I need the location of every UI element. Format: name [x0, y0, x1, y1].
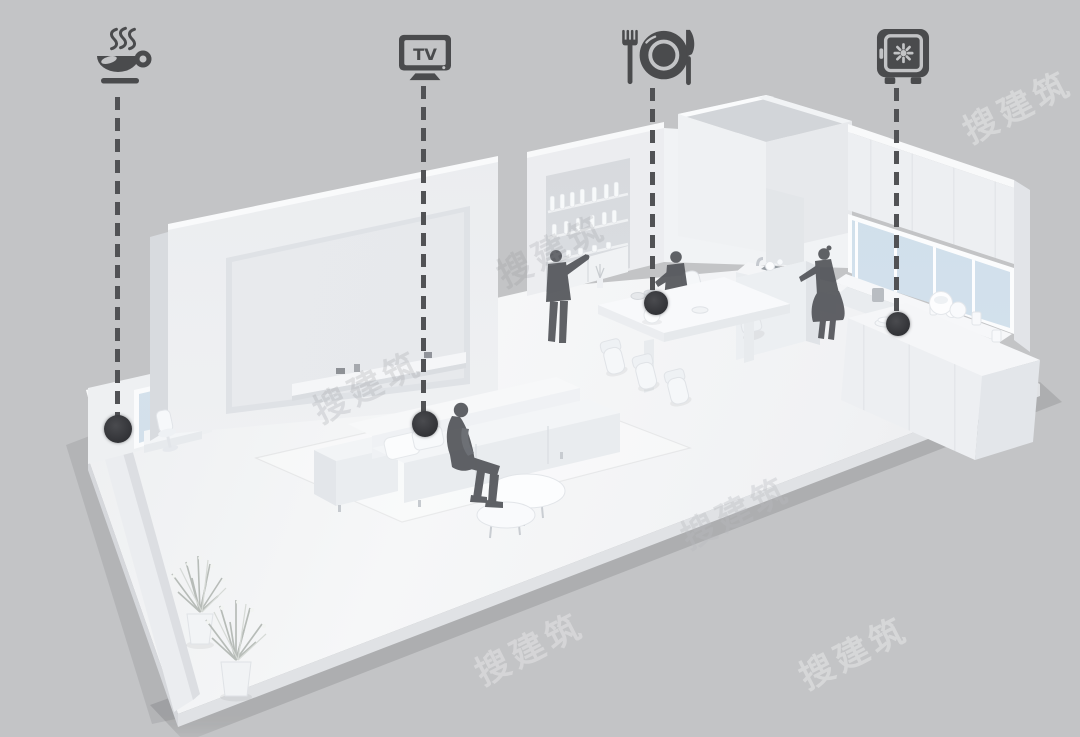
canister [972, 312, 981, 325]
bowl [631, 293, 645, 300]
person-silhouette-wine-shelf [546, 250, 589, 343]
person-shin [473, 470, 485, 499]
safe-foot [885, 77, 896, 84]
plant-leaves [172, 556, 222, 612]
coffee-table-small [477, 502, 535, 538]
dining-table-items [631, 290, 708, 325]
safe-marker-dot [886, 312, 910, 336]
coffee-cup-icon [94, 26, 154, 90]
plate [640, 31, 688, 79]
mixing-bowl [950, 302, 966, 318]
tv-label: TV [413, 45, 437, 64]
person-head [550, 250, 562, 262]
tv-stand [410, 73, 441, 80]
plant-pot [221, 662, 251, 696]
dining-chair [662, 368, 692, 409]
vase [597, 278, 603, 288]
plant-pot [187, 614, 213, 644]
cup [766, 262, 775, 271]
tv-indicator [442, 66, 445, 69]
dining-marker-dot [644, 291, 668, 315]
person-leg [828, 320, 836, 340]
desk-chair [153, 409, 179, 454]
apartment-render-stage: TV [0, 0, 1080, 737]
dining-chair [598, 338, 628, 379]
tv-marker-dot [412, 411, 438, 437]
chair-stem [166, 436, 171, 448]
chair-back [666, 376, 690, 406]
chair-back [602, 346, 626, 376]
safe-dial-center [900, 50, 906, 56]
kitchen-counter-items [756, 257, 1001, 342]
person-torso [815, 259, 839, 295]
faucet [756, 257, 763, 266]
safe-hinge [879, 48, 883, 59]
dining-chair [630, 353, 660, 394]
person-silhouette-kitchen [799, 246, 845, 341]
person-hand [585, 255, 590, 260]
safe-leader-line [894, 88, 899, 318]
mixing-bowl [934, 296, 948, 304]
cup-handle [137, 53, 149, 65]
person-silhouette-sofa [447, 403, 503, 508]
canister [992, 330, 1001, 342]
person-arm [799, 265, 819, 282]
person-leg [818, 320, 826, 339]
tv-icon: TV [398, 32, 452, 84]
coffee-marker-dot [104, 415, 132, 443]
person-leg [559, 301, 568, 343]
fork [622, 30, 638, 84]
person-skirt [812, 291, 845, 322]
steam-lines [108, 27, 138, 49]
book [354, 364, 360, 372]
person-foot [470, 495, 487, 503]
safe-foot [911, 77, 922, 84]
media-shelf-objects [336, 352, 432, 374]
coffee-leader-line [115, 97, 120, 423]
dining-leader-line [650, 88, 655, 298]
niche-flower-vase [596, 264, 604, 288]
person-leg [548, 301, 558, 342]
potted-plant [206, 600, 266, 702]
tv-leader-line [421, 86, 426, 418]
speaker [336, 368, 345, 374]
knife [686, 30, 694, 85]
fork-plate-knife-icon [620, 28, 696, 88]
plate [692, 307, 708, 313]
cup [777, 259, 783, 265]
person-hair-bun [827, 246, 832, 251]
person-head [454, 403, 468, 417]
safe-icon [876, 28, 930, 86]
over-furniture-details [0, 0, 1080, 737]
coffee-machine [872, 288, 884, 302]
cup-bowl [97, 56, 139, 72]
saucer [101, 78, 139, 84]
chair-back [634, 361, 658, 391]
